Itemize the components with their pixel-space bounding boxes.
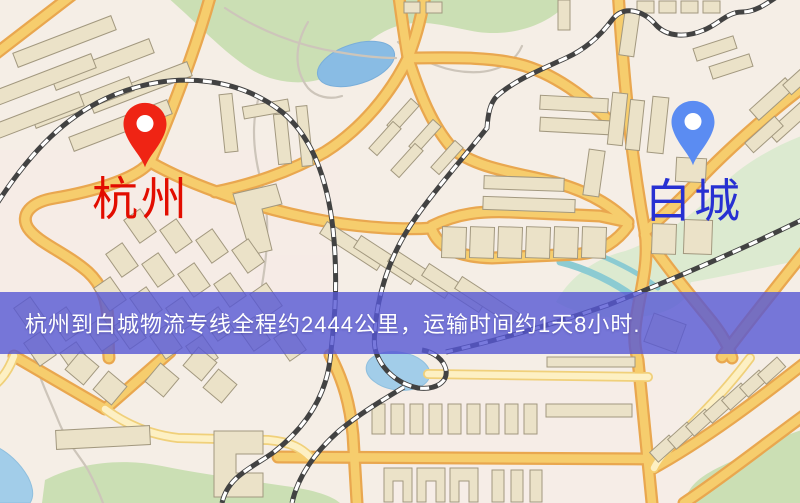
- destination-city-label: 白城: [645, 179, 743, 225]
- origin-pin: [118, 101, 172, 171]
- map-artwork: [0, 0, 800, 503]
- pin-body: [124, 103, 167, 167]
- pin-hole: [685, 113, 702, 130]
- map-pin-icon: [666, 99, 720, 169]
- route-info-banner: 杭州到白城物流专线全程约2444公里，运输时间约1天8小时.: [0, 292, 800, 354]
- route-info-text: 杭州到白城物流专线全程约2444公里，运输时间约1天8小时.: [0, 307, 641, 339]
- origin-city-label: 杭州: [92, 177, 190, 223]
- pin-body: [672, 101, 715, 165]
- destination-pin: [666, 99, 720, 169]
- map-pin-icon: [118, 101, 172, 171]
- pin-hole: [137, 115, 154, 132]
- map-canvas: 杭州 白城 杭州到白城物流专线全程约2444公里，运输时间约1天8小时.: [0, 0, 800, 503]
